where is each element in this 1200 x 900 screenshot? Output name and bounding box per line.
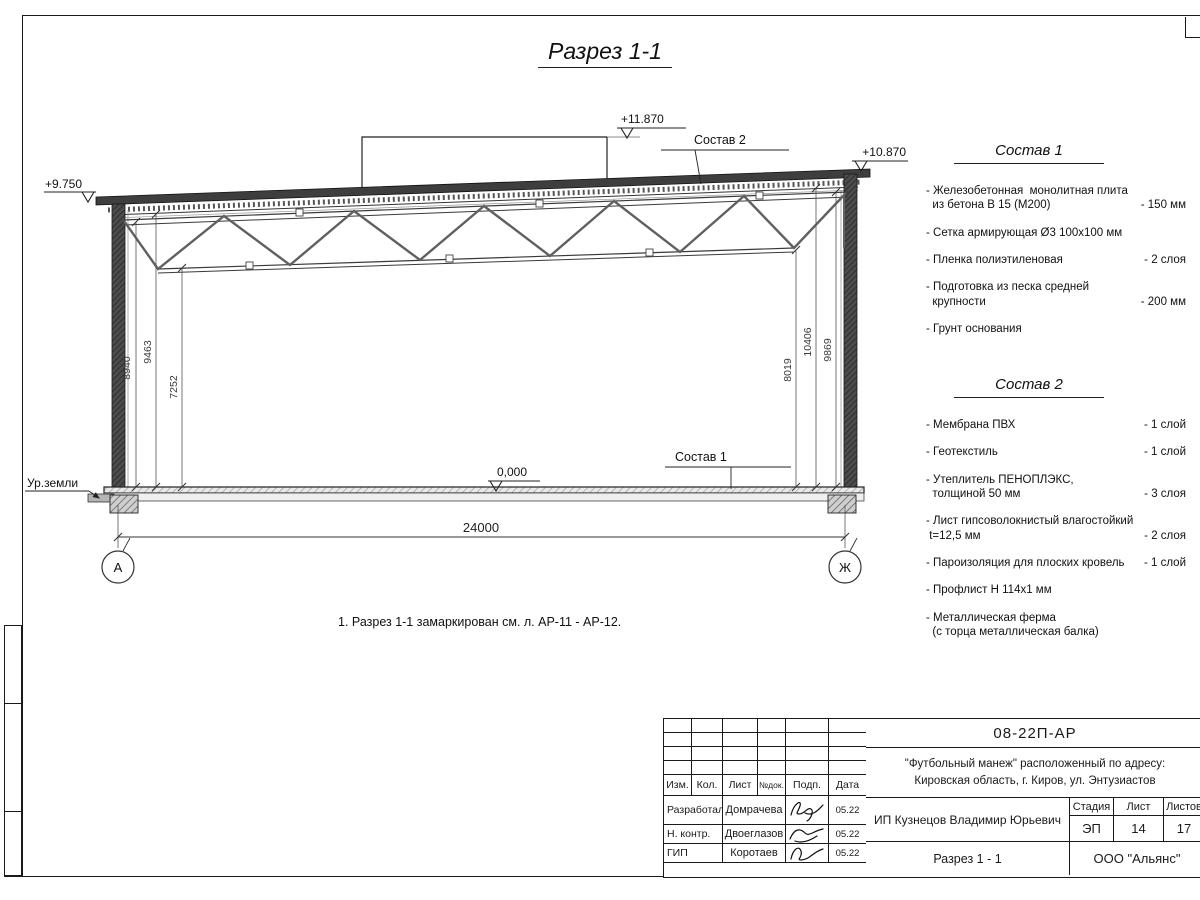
left-foundation <box>110 495 138 513</box>
drawing-name: Разрез 1 - 1 <box>866 842 1070 875</box>
staff-date: 05.22 <box>829 844 866 863</box>
material-qty: - 3 слоя <box>1140 487 1186 501</box>
list-item: - Профлист Н 114х1 мм <box>926 583 1186 597</box>
material-qty: - 1 слой <box>1140 418 1186 432</box>
material-name: - Металлическая ферма (с торца металличе… <box>926 611 1099 640</box>
staff-name: Коротаев <box>723 844 786 863</box>
empty-cell <box>692 761 723 775</box>
list-item: - Подготовка из песка средней крупности … <box>926 280 1186 309</box>
list-item: - Грунт основания <box>926 322 1186 336</box>
col-header-kol: Кол. <box>692 775 723 796</box>
titleblock-main: 08-22П-АР "Футбольный манеж" расположенн… <box>866 718 1200 878</box>
client-name: ИП Кузнецов Владимир Юрьевич <box>866 798 1070 841</box>
empty-cell <box>758 719 786 733</box>
empty-cell <box>664 863 866 877</box>
material-qty: - 1 слой <box>1140 556 1186 570</box>
material-name: - Геотекстиль <box>926 445 998 459</box>
col-header-ndok: №док. <box>758 775 786 796</box>
empty-cell <box>723 733 758 747</box>
col-header-podp: Подп. <box>786 775 829 796</box>
empty-cell <box>786 761 829 775</box>
empty-cell <box>692 733 723 747</box>
empty-cell <box>829 747 866 761</box>
list-item: - Утеплитель ПЕНОПЛЭКС, толщиной 50 мм -… <box>926 473 1186 502</box>
right-foundation <box>828 495 856 513</box>
empty-cell <box>723 719 758 733</box>
staff-date: 05.22 <box>829 796 866 825</box>
dim-left-3: 7252 <box>168 375 180 399</box>
empty-cell <box>664 747 692 761</box>
left-wall <box>112 204 125 487</box>
staff-role: Н. контр. <box>664 825 723 844</box>
empty-cell <box>786 733 829 747</box>
company-name: ООО "Альянс" <box>1070 842 1200 875</box>
material-name: - Железобетонная монолитная плита из бет… <box>926 184 1128 213</box>
staff-role: ГИП <box>664 844 723 863</box>
material-name: - Пленка полиэтиленовая <box>926 253 1063 267</box>
empty-cell <box>692 719 723 733</box>
col-header-izm: Изм. <box>664 775 692 796</box>
empty-cell <box>829 733 866 747</box>
material-name: - Пароизоляция для плоских кровель <box>926 556 1125 570</box>
leader-roof-label: Состав 2 <box>694 133 746 147</box>
right-wall <box>844 174 857 487</box>
list-item: - Сетка армирующая Ø3 100х100 мм <box>926 226 1186 240</box>
ground-label: Ур.земли <box>27 476 78 490</box>
empty-cell <box>829 761 866 775</box>
empty-cell <box>786 719 829 733</box>
col-header-data: Дата <box>829 775 866 796</box>
axis-marks: А Ж <box>102 538 861 583</box>
empty-cell <box>786 747 829 761</box>
list-item: - Лист гипсоволокнистый влагостойкий t=1… <box>926 514 1186 543</box>
sheet-note: 1. Разрез 1-1 замаркирован см. л. АР-11 … <box>338 615 621 629</box>
composition-2-list: Состав 2 - Мембрана ПВХ - 1 слой - Геоте… <box>926 376 1186 653</box>
staff-name: Домрачева <box>723 796 786 825</box>
empty-cell <box>829 719 866 733</box>
empty-cell <box>723 761 758 775</box>
list-item: - Мембрана ПВХ - 1 слой <box>926 418 1186 432</box>
empty-cell <box>758 761 786 775</box>
axis-a-label: А <box>114 560 123 575</box>
staff-name: Двоеглазов <box>723 825 786 844</box>
signature <box>786 844 829 863</box>
empty-cell <box>758 747 786 761</box>
dim-left-1: 8940 <box>121 356 133 380</box>
dim-right-3: 9869 <box>822 338 834 362</box>
axis-zh-label: Ж <box>839 560 851 575</box>
staff-role: Разработал <box>664 796 723 825</box>
dim-right-2: 10406 <box>802 327 814 356</box>
material-name: - Грунт основания <box>926 322 1022 336</box>
list-item: - Геотекстиль - 1 слой <box>926 445 1186 459</box>
sheet-number: 14 <box>1114 816 1164 841</box>
sheets-total: 17 <box>1164 816 1200 841</box>
document-number: 08-22П-АР <box>866 719 1200 748</box>
list-item: - Железобетонная монолитная плита из бет… <box>926 184 1186 213</box>
elev-roof-right: +10.870 <box>862 145 906 159</box>
dim-left-2: 9463 <box>142 340 154 364</box>
empty-cell <box>692 747 723 761</box>
staff-date: 05.22 <box>829 825 866 844</box>
elevation-marks: +9.750 +11.870 +10.870 0,000 <box>44 112 908 491</box>
empty-cell <box>664 761 692 775</box>
signature <box>786 825 829 844</box>
list-item: - Пароизоляция для плоских кровель - 1 с… <box>926 556 1186 570</box>
material-qty: - 1 слой <box>1140 445 1186 459</box>
sheets-label: Листов <box>1164 798 1200 816</box>
frame-side-cell <box>5 704 21 812</box>
titleblock-revision-table: Изм. Кол. Лист №док. Подп. Дата Разработ… <box>663 718 867 878</box>
empty-cell <box>664 733 692 747</box>
leader-sostav1: Состав 1 <box>665 450 791 489</box>
composition-2-heading: Состав 2 <box>954 376 1104 398</box>
floor-slab <box>88 487 864 513</box>
empty-cell <box>664 719 692 733</box>
list-item: - Металлическая ферма (с торца металличе… <box>926 611 1186 640</box>
project-description: "Футбольный манеж" расположенный по адре… <box>866 748 1200 798</box>
empty-cell <box>723 747 758 761</box>
sheet-label: Лист <box>1114 798 1164 816</box>
span-dim-label: 24000 <box>463 520 499 535</box>
frame-side-stamp <box>4 625 22 876</box>
material-name: - Утеплитель ПЕНОПЛЭКС, толщиной 50 мм <box>926 473 1074 502</box>
col-header-list: Лист <box>723 775 758 796</box>
left-dimension-lines: 8940 9463 7252 <box>121 210 186 491</box>
stage-label: Стадия <box>1070 798 1114 816</box>
span-dimension: 24000 <box>114 505 849 548</box>
material-qty: - 2 слоя <box>1140 529 1186 543</box>
leader-floor-label: Состав 1 <box>675 450 727 464</box>
composition-1-list: Состав 1 - Железобетонная монолитная пли… <box>926 142 1186 349</box>
material-name: - Мембрана ПВХ <box>926 418 1015 432</box>
elev-floor: 0,000 <box>497 465 527 479</box>
material-name: - Сетка армирующая Ø3 100х100 мм <box>926 226 1122 240</box>
elev-roof-left: +9.750 <box>45 177 82 191</box>
material-qty: - 2 слоя <box>1140 253 1186 267</box>
signature <box>786 796 829 825</box>
material-name: - Профлист Н 114х1 мм <box>926 583 1052 597</box>
dim-right-1: 8019 <box>782 358 794 382</box>
material-name: - Подготовка из песка средней крупности <box>926 280 1089 309</box>
empty-cell <box>758 733 786 747</box>
composition-1-heading: Состав 1 <box>954 142 1104 164</box>
list-item: - Пленка полиэтиленовая - 2 слоя <box>926 253 1186 267</box>
stage-sheet-table: Стадия Лист Листов ЭП 14 17 <box>1070 798 1200 841</box>
material-qty: - 200 мм <box>1137 295 1186 309</box>
elev-parapet: +11.870 <box>621 112 664 126</box>
stage-value: ЭП <box>1070 816 1114 841</box>
material-qty: - 150 мм <box>1137 198 1186 212</box>
material-name: - Лист гипсоволокнистый влагостойкий t=1… <box>926 514 1133 543</box>
